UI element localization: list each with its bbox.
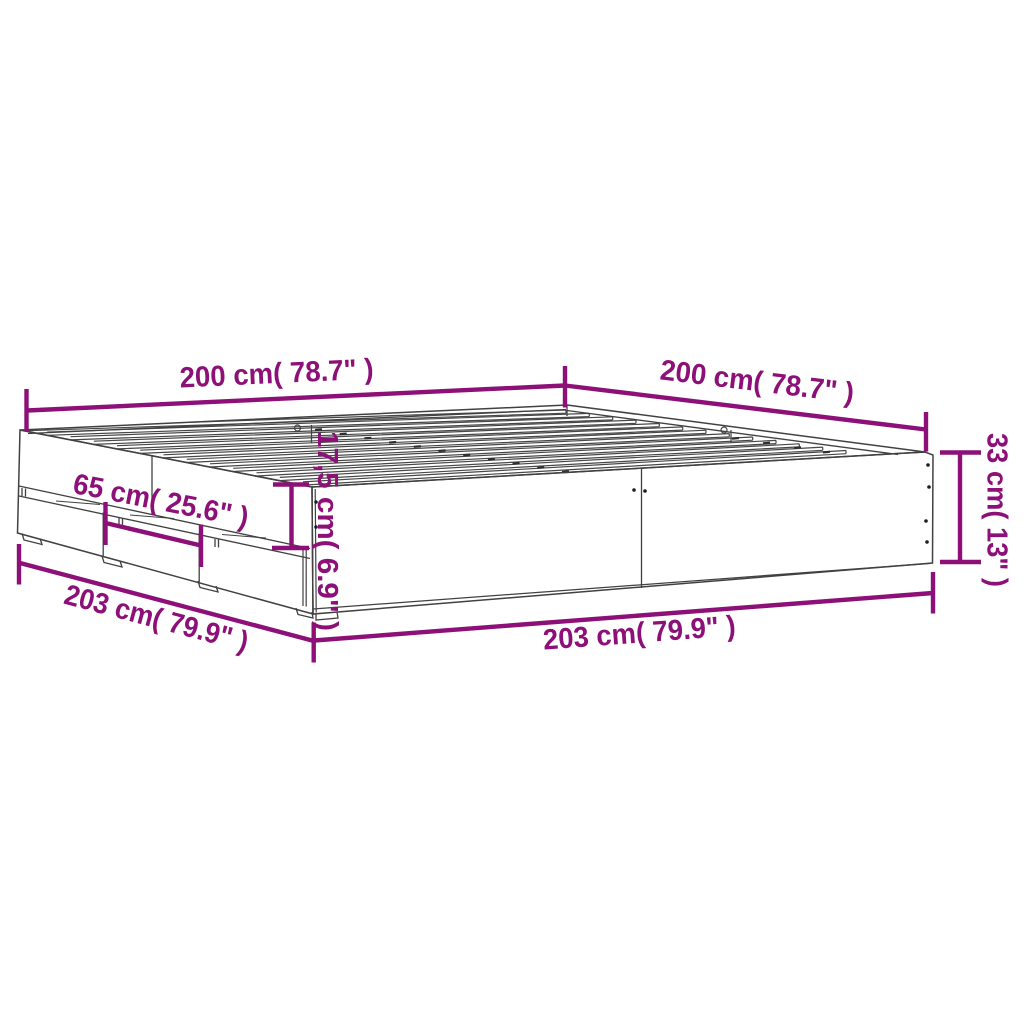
svg-text:200 cm( 78.7" ): 200 cm( 78.7" ) (179, 354, 374, 395)
svg-text:17,5 cm( 6.9" ): 17,5 cm( 6.9" ) (311, 431, 343, 631)
svg-text:33 cm( 13" ): 33 cm( 13" ) (981, 433, 1013, 587)
svg-text:203 cm( 79.9" ): 203 cm( 79.9" ) (542, 610, 737, 656)
